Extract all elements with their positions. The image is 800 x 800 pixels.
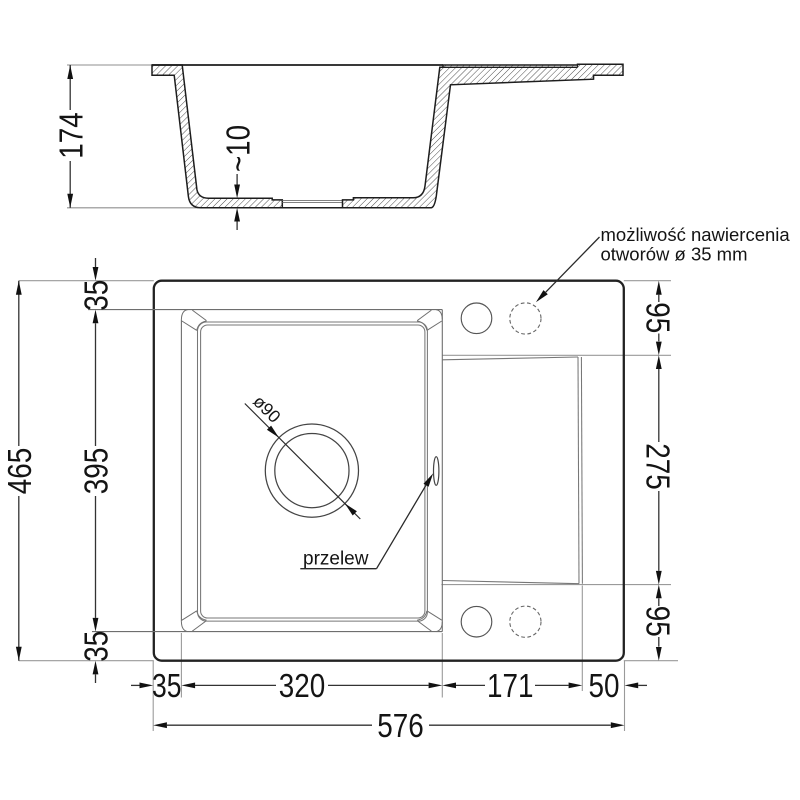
svg-text:35: 35 [79,631,116,662]
svg-text:171: 171 [487,668,534,705]
svg-text:95: 95 [639,302,676,333]
svg-text:174: 174 [53,112,90,159]
svg-text:ø90: ø90 [249,391,285,427]
svg-text:możliwość nawiercenia: możliwość nawiercenia [601,224,791,245]
svg-text:395: 395 [79,448,116,495]
svg-text:~10: ~10 [220,125,257,172]
svg-text:275: 275 [639,443,676,490]
svg-text:95: 95 [639,606,676,637]
svg-text:przelew: przelew [303,549,369,570]
svg-text:320: 320 [279,668,326,705]
svg-text:35: 35 [152,668,182,705]
svg-text:465: 465 [2,448,39,495]
svg-text:576: 576 [377,708,424,745]
svg-text:35: 35 [79,280,116,311]
svg-text:otworów ø 35 mm: otworów ø 35 mm [601,243,748,264]
svg-text:50: 50 [589,668,620,705]
